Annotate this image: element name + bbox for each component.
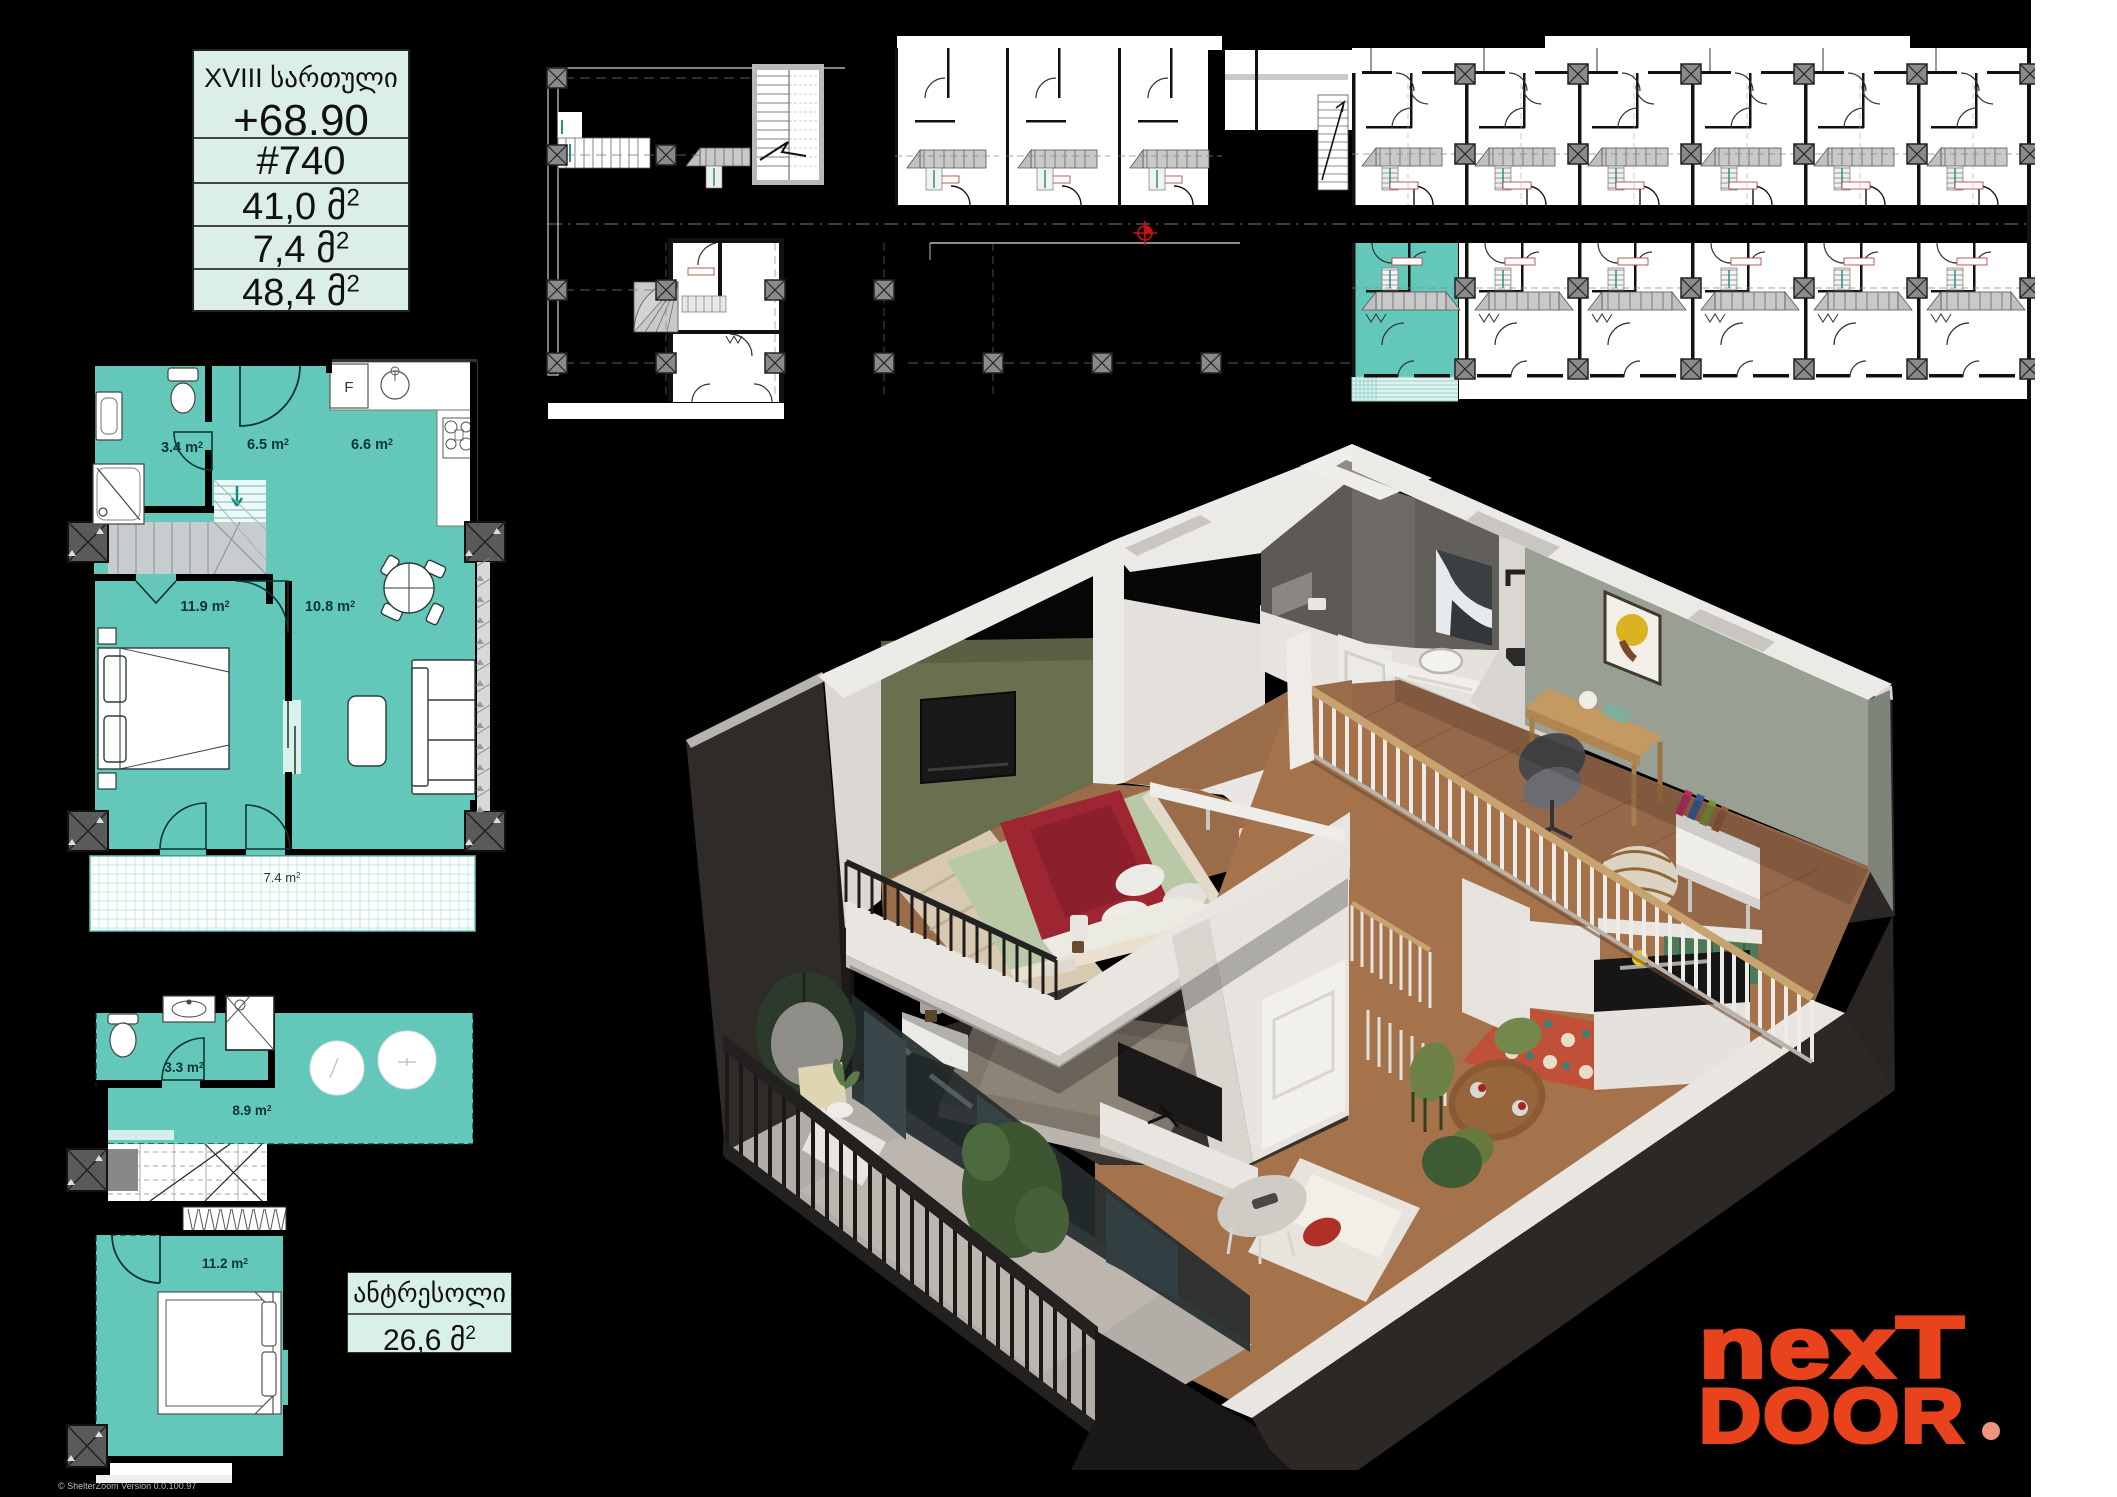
svg-text:7.4 m2: 7.4 m2: [264, 870, 302, 885]
svg-text:6.6 m2: 6.6 m2: [351, 437, 393, 453]
svg-text:11.2 m2: 11.2 m2: [202, 1256, 248, 1271]
svg-text:8.9 m2: 8.9 m2: [232, 1103, 272, 1118]
svg-text:11.9 m2: 11.9 m2: [180, 599, 229, 615]
svg-text:6.5 m2: 6.5 m2: [247, 437, 289, 453]
svg-text:3.4 m2: 3.4 m2: [161, 440, 203, 456]
svg-text:10.8 m2: 10.8 m2: [305, 599, 355, 615]
svg-text:3.3 m2: 3.3 m2: [164, 1060, 204, 1075]
svg-text:F: F: [344, 379, 353, 396]
